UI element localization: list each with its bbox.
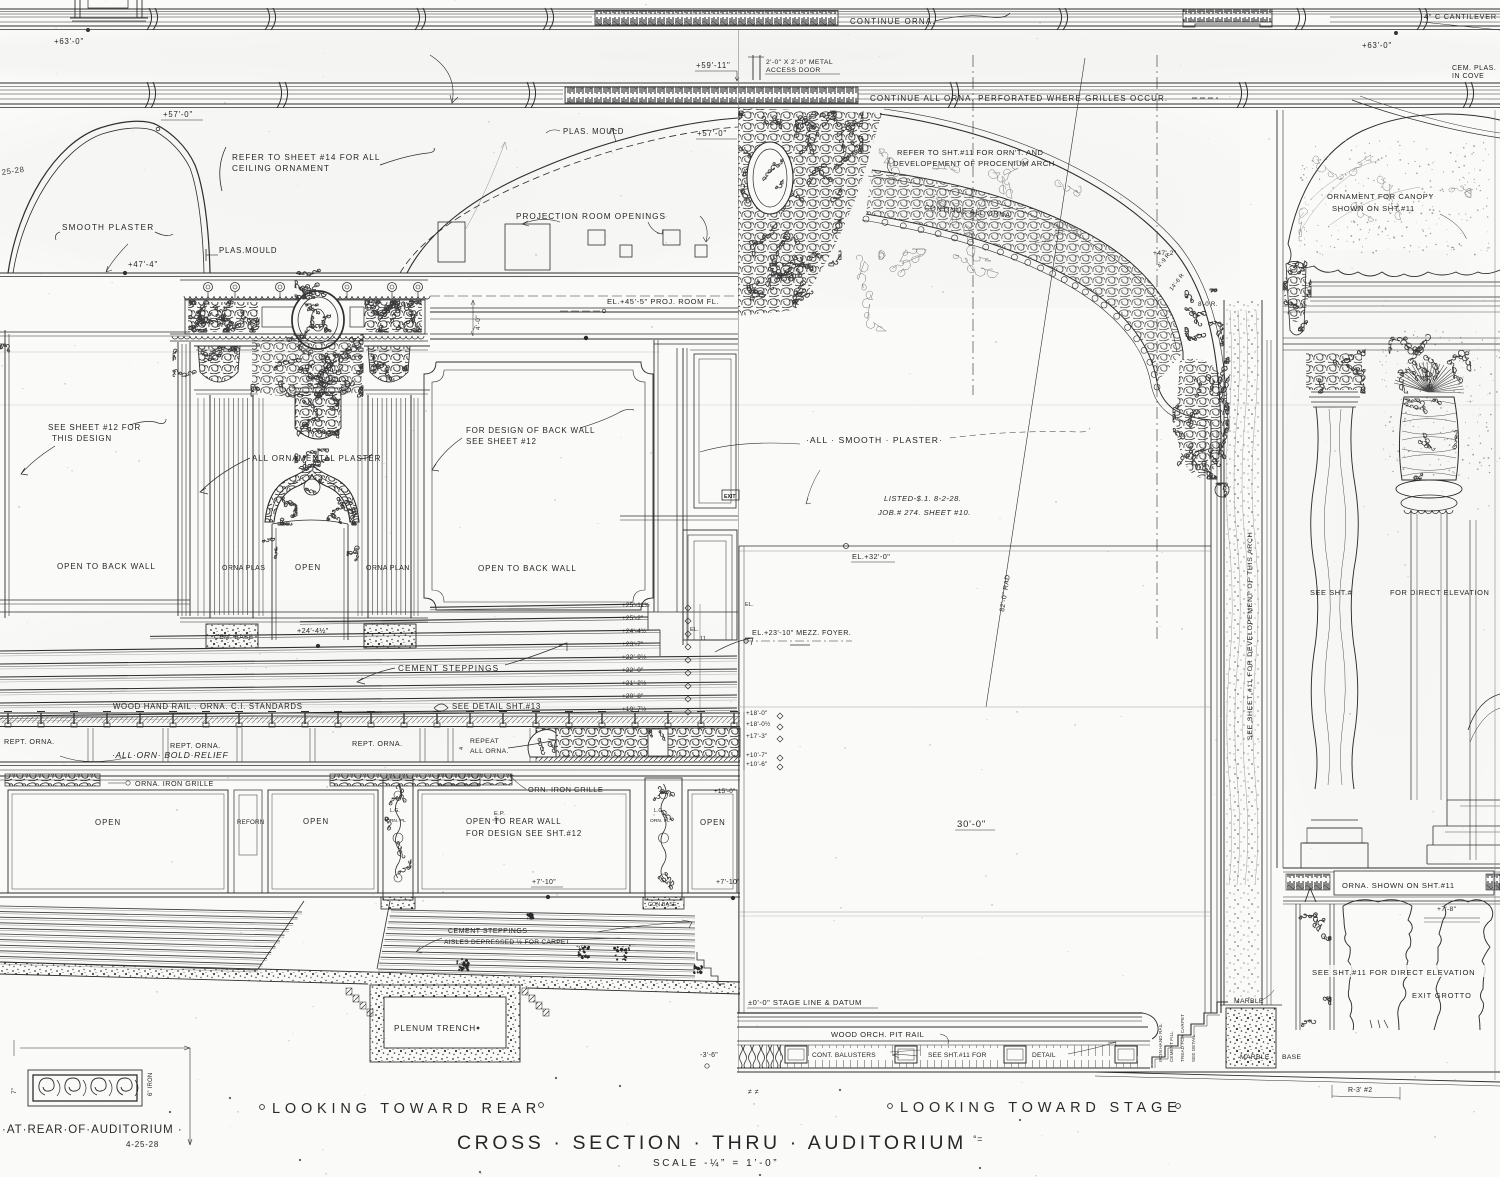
svg-text:IN COVE: IN COVE — [1452, 73, 1484, 80]
svg-text:SEE SHT.#11 FOR DIRECT ELE: SEE SHT.#11 FOR DIRECT ELEVATION — [1312, 968, 1475, 977]
svg-text:L.G.: L.G. — [654, 808, 664, 814]
svg-text:EXIT GROTTO: EXIT GROTTO — [1412, 991, 1472, 1000]
svg-text:REFER TO SHEET #14 FOR ALL: REFER TO SHEET #14 FOR ALL — [232, 153, 380, 162]
svg-text:R-3' #2: R-3' #2 — [1348, 1087, 1372, 1094]
svg-text:+20'-8": +20'-8" — [622, 693, 643, 700]
svg-text:4" C CANTILEVER: 4" C CANTILEVER — [1424, 12, 1497, 21]
svg-text:4: 4 — [459, 747, 465, 750]
svg-text:PLENUM TRENCH: PLENUM TRENCH — [394, 1024, 476, 1033]
svg-text:8'-0 R.: 8'-0 R. — [1198, 301, 1218, 308]
svg-text:WOOD HAND RAIL . ORNA. C.I: WOOD HAND RAIL . ORNA. C.I. STANDARDS — [113, 702, 303, 711]
svg-text:+7'-10": +7'-10" — [532, 879, 556, 886]
svg-text:IRON HAND RAIL: IRON HAND RAIL — [1158, 1023, 1163, 1062]
svg-text:SMOOTH PLASTER: SMOOTH PLASTER — [62, 223, 154, 232]
svg-text:THIS DESIGN: THIS DESIGN — [52, 434, 112, 443]
svg-text:+23'-7": +23'-7" — [622, 641, 643, 648]
svg-text:2'-0" X 2'-0" METAL: 2'-0" X 2'-0" METAL — [766, 59, 833, 66]
svg-text:EL.+45'-5" PROJ. ROOM FL.: EL.+45'-5" PROJ. ROOM FL. — [607, 297, 719, 306]
svg-text:CONTINUE ALL ORNA. PERFORAT: CONTINUE ALL ORNA. PERFORATED WHERE GRIL… — [870, 94, 1168, 103]
svg-text:MARBLE: MARBLE — [1240, 1054, 1270, 1061]
svg-text:WOOD ORCH. PIT RAIL: WOOD ORCH. PIT RAIL — [831, 1030, 924, 1039]
svg-text:+25'-11½: +25'-11½ — [622, 601, 650, 609]
svg-text:EL.: EL. — [745, 602, 754, 608]
svg-text:E.P.: E.P. — [494, 811, 505, 817]
svg-text:OPEN TO BACK WALL: OPEN TO BACK WALL — [57, 562, 156, 571]
svg-text:BASE: BASE — [1282, 1054, 1302, 1061]
svg-text:SEE SHEET #12 FOR: SEE SHEET #12 FOR — [48, 423, 141, 432]
svg-text:LOOKING TOWARD REAR: LOOKING TOWARD REAR — [272, 1101, 541, 1117]
svg-text:CEMENT STEPPINGS: CEMENT STEPPINGS — [448, 928, 527, 935]
svg-text:SCALE -¼” = 1’-0”: SCALE -¼” = 1’-0” — [653, 1157, 779, 1169]
svg-text:ORN. PL: ORN. PL — [386, 818, 406, 824]
svg-text:OPEN: OPEN — [303, 817, 329, 826]
svg-text:EL.+23'-10" MEZZ. FOYER.: EL.+23'-10" MEZZ. FOYER. — [752, 628, 851, 637]
svg-text:+7'-10": +7'-10" — [716, 879, 740, 886]
svg-text:EL.+32'-0": EL.+32'-0" — [852, 552, 890, 561]
svg-text:JOB.# 274. SHEET #10.: JOB.# 274. SHEET #10. — [877, 508, 971, 517]
svg-text:REPT. ORNA.: REPT. ORNA. — [4, 737, 55, 746]
svg-text:SEE DETAIL SHT.#13: SEE DETAIL SHT.#13 — [452, 702, 541, 711]
svg-text:OPEN: OPEN — [95, 818, 121, 827]
svg-text:REPT. ORNA.: REPT. ORNA. — [352, 739, 403, 748]
svg-text:FOR DESIGN OF BACK WALL: FOR DESIGN OF BACK WALL — [466, 426, 595, 435]
svg-text:MARBLE: MARBLE — [1234, 998, 1264, 1005]
svg-text:EXIT: EXIT — [724, 494, 736, 500]
svg-text:+18'-0½: +18'-0½ — [746, 720, 771, 728]
svg-text:CEMENT STEPPINGS: CEMENT STEPPINGS — [398, 664, 499, 673]
svg-text:+10'-6": +10'-6" — [746, 761, 767, 768]
svg-text:11: 11 — [700, 636, 706, 642]
svg-text:SEE SHEET #12: SEE SHEET #12 — [466, 437, 537, 446]
svg-text:PLAS. MOULD: PLAS. MOULD — [563, 127, 624, 136]
svg-text:OPEN TO REAR WALL: OPEN TO REAR WALL — [466, 817, 561, 826]
svg-text:ORN. IRON GRILLE: ORN. IRON GRILLE — [528, 785, 603, 794]
svg-text:DETAIL: DETAIL — [1032, 1052, 1056, 1059]
svg-text:SEE SHEET #11 FOR DEVELOPEM: SEE SHEET #11 FOR DEVELOPEMENT OF THIS A… — [1247, 532, 1254, 740]
svg-text:±0'-0" STAGE LINE & DATUM: ±0'-0" STAGE LINE & DATUM — [748, 998, 862, 1007]
svg-text:CON BASE: CON BASE — [648, 902, 677, 908]
svg-text:≠ ≠: ≠ ≠ — [748, 1089, 759, 1096]
svg-text:CROSS · SECTION · THRU · AUDIT: CROSS · SECTION · THRU · AUDITORIUM — [457, 1132, 967, 1154]
svg-text:+59'-11": +59'-11" — [696, 61, 731, 70]
svg-text:ALL ORNA.: ALL ORNA. — [470, 748, 509, 755]
svg-text:SEE SHT.#11 FOR: SEE SHT.#11 FOR — [928, 1052, 987, 1059]
svg-text:+63'-0": +63'-0" — [54, 37, 84, 46]
svg-text:+57'-0": +57'-0" — [697, 129, 727, 138]
svg-text:+24'-4½": +24'-4½" — [297, 626, 329, 635]
svg-text:FOR DESIGN SEE SHT.#12: FOR DESIGN SEE SHT.#12 — [466, 829, 582, 838]
svg-text:6” IRON: 6” IRON — [148, 1073, 154, 1096]
svg-text:·ALL · SMOOTH · PLASTER·: ·ALL · SMOOTH · PLASTER· — [806, 435, 943, 445]
svg-text:SHOWN ON SHT.#11: SHOWN ON SHT.#11 — [1332, 204, 1415, 213]
svg-text:DEVELOPEMENT OF PROCENIUM ARCH: DEVELOPEMENT OF PROCENIUM ARCH — [893, 159, 1055, 168]
svg-text:EL.: EL. — [690, 627, 699, 633]
svg-text:ORNA PLAS: ORNA PLAS — [222, 565, 265, 572]
svg-text:ORNA PLAN: ORNA PLAN — [366, 565, 410, 572]
svg-text:ORNAMENT FOR CANOPY: ORNAMENT FOR CANOPY — [1327, 192, 1434, 201]
svg-text:4'-0": 4'-0" — [475, 315, 482, 330]
svg-text:·ALL·ORN· BOLD·RELIEF: ·ALL·ORN· BOLD·RELIEF — [112, 750, 228, 760]
svg-text:REPEAT: REPEAT — [470, 738, 499, 745]
svg-text:+63'-0": +63'-0" — [1362, 41, 1392, 50]
svg-text:+22'-0": +22'-0" — [622, 667, 643, 674]
svg-text:REPT. ORNA.: REPT. ORNA. — [170, 741, 221, 750]
svg-text:+21'-2½: +21'-2½ — [622, 679, 647, 687]
svg-text:30'-0": 30'-0" — [957, 819, 986, 830]
svg-text:+47'-4": +47'-4" — [128, 260, 158, 269]
svg-text:REFORN: REFORN — [237, 819, 264, 826]
svg-text:+10'-7": +10'-7" — [746, 752, 767, 759]
svg-text:L.G.: L.G. — [390, 808, 400, 814]
svg-text:+25'-2": +25'-2" — [622, 615, 643, 622]
svg-text:+17'-3": +17'-3" — [746, 733, 767, 740]
svg-text:FOR DIRECT ELEVATION: FOR DIRECT ELEVATION — [1390, 588, 1489, 597]
svg-text:SEE SHT.#: SEE SHT.# — [1310, 588, 1353, 597]
svg-text:+24'-4½: +24'-4½ — [622, 627, 647, 635]
svg-text:PLAS.MOULD: PLAS.MOULD — [219, 246, 277, 255]
svg-text:CEM. PLAS.: CEM. PLAS. — [1452, 65, 1496, 72]
svg-text:TREAD FOR CARPET: TREAD FOR CARPET — [1180, 1014, 1185, 1062]
svg-text:ORNA. SHOWN ON SHT.#11: ORNA. SHOWN ON SHT.#11 — [1342, 881, 1455, 890]
svg-text:+22'-9½: +22'-9½ — [622, 653, 647, 661]
svg-text:·AT·REAR·OF·AUDITORIUM ·: ·AT·REAR·OF·AUDITORIUM · — [2, 1124, 183, 1136]
svg-text:+18'-0": +18'-0" — [746, 710, 767, 717]
svg-text:OPEN: OPEN — [295, 563, 321, 572]
svg-text:4-25-28: 4-25-28 — [126, 1140, 159, 1149]
svg-text:LISTED-$.1. 8-2-28.: LISTED-$.1. 8-2-28. — [884, 494, 961, 503]
svg-text:ORNA. IRON GRILLE: ORNA. IRON GRILLE — [135, 779, 214, 788]
svg-text:CONTINUE ORNA.: CONTINUE ORNA. — [850, 17, 936, 26]
svg-text:7”: 7” — [11, 1088, 18, 1094]
svg-text:+57'-0": +57'-0" — [163, 110, 193, 119]
svg-text:+15'-0": +15'-0" — [714, 788, 735, 795]
svg-text:LOOKING TOWARD STAGE: LOOKING TOWARD STAGE — [900, 1100, 1182, 1116]
svg-text:SEE DETAIL: SEE DETAIL — [1191, 1034, 1196, 1062]
svg-text:OPEN: OPEN — [700, 818, 726, 827]
svg-text:ACCESS DOOR: ACCESS DOOR — [766, 67, 821, 74]
svg-text:-3'-6": -3'-6" — [700, 1052, 718, 1059]
svg-text:+7'-8": +7'-8" — [1437, 906, 1457, 913]
svg-text:CONT. BALUSTERS: CONT. BALUSTERS — [812, 1052, 876, 1059]
svg-text:REFER TO SHT.#11 FOR ORN'T. AN: REFER TO SHT.#11 FOR ORN'T. AND — [897, 148, 1044, 157]
svg-text:°=: °= — [973, 1134, 983, 1144]
svg-text:CEMENT FILL: CEMENT FILL — [1169, 1031, 1174, 1062]
svg-text:OPEN TO BACK WALL: OPEN TO BACK WALL — [478, 564, 577, 573]
svg-text:ORN. PL: ORN. PL — [650, 818, 670, 824]
svg-text:CEILING ORNAMENT: CEILING ORNAMENT — [232, 164, 330, 173]
